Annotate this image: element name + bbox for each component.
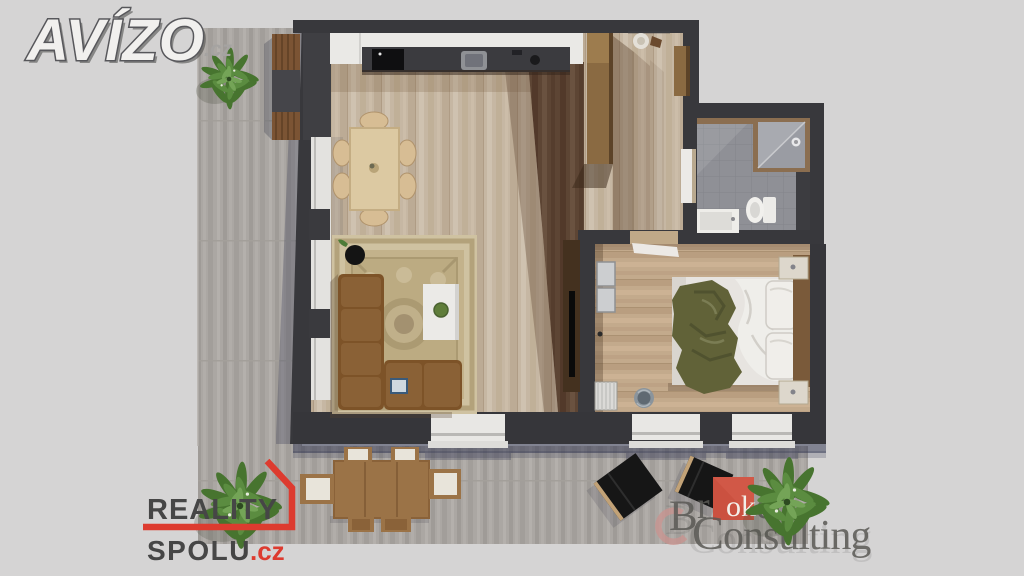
svg-text:C: C bbox=[692, 507, 724, 560]
svg-text:REALITY: REALITY bbox=[147, 494, 278, 526]
svg-text:.cz: .cz bbox=[250, 536, 285, 566]
svg-text:AVÍZO: AVÍZO bbox=[25, 8, 205, 73]
svg-text:SPOLU: SPOLU bbox=[147, 535, 251, 566]
svg-text:.cz: .cz bbox=[204, 38, 233, 61]
